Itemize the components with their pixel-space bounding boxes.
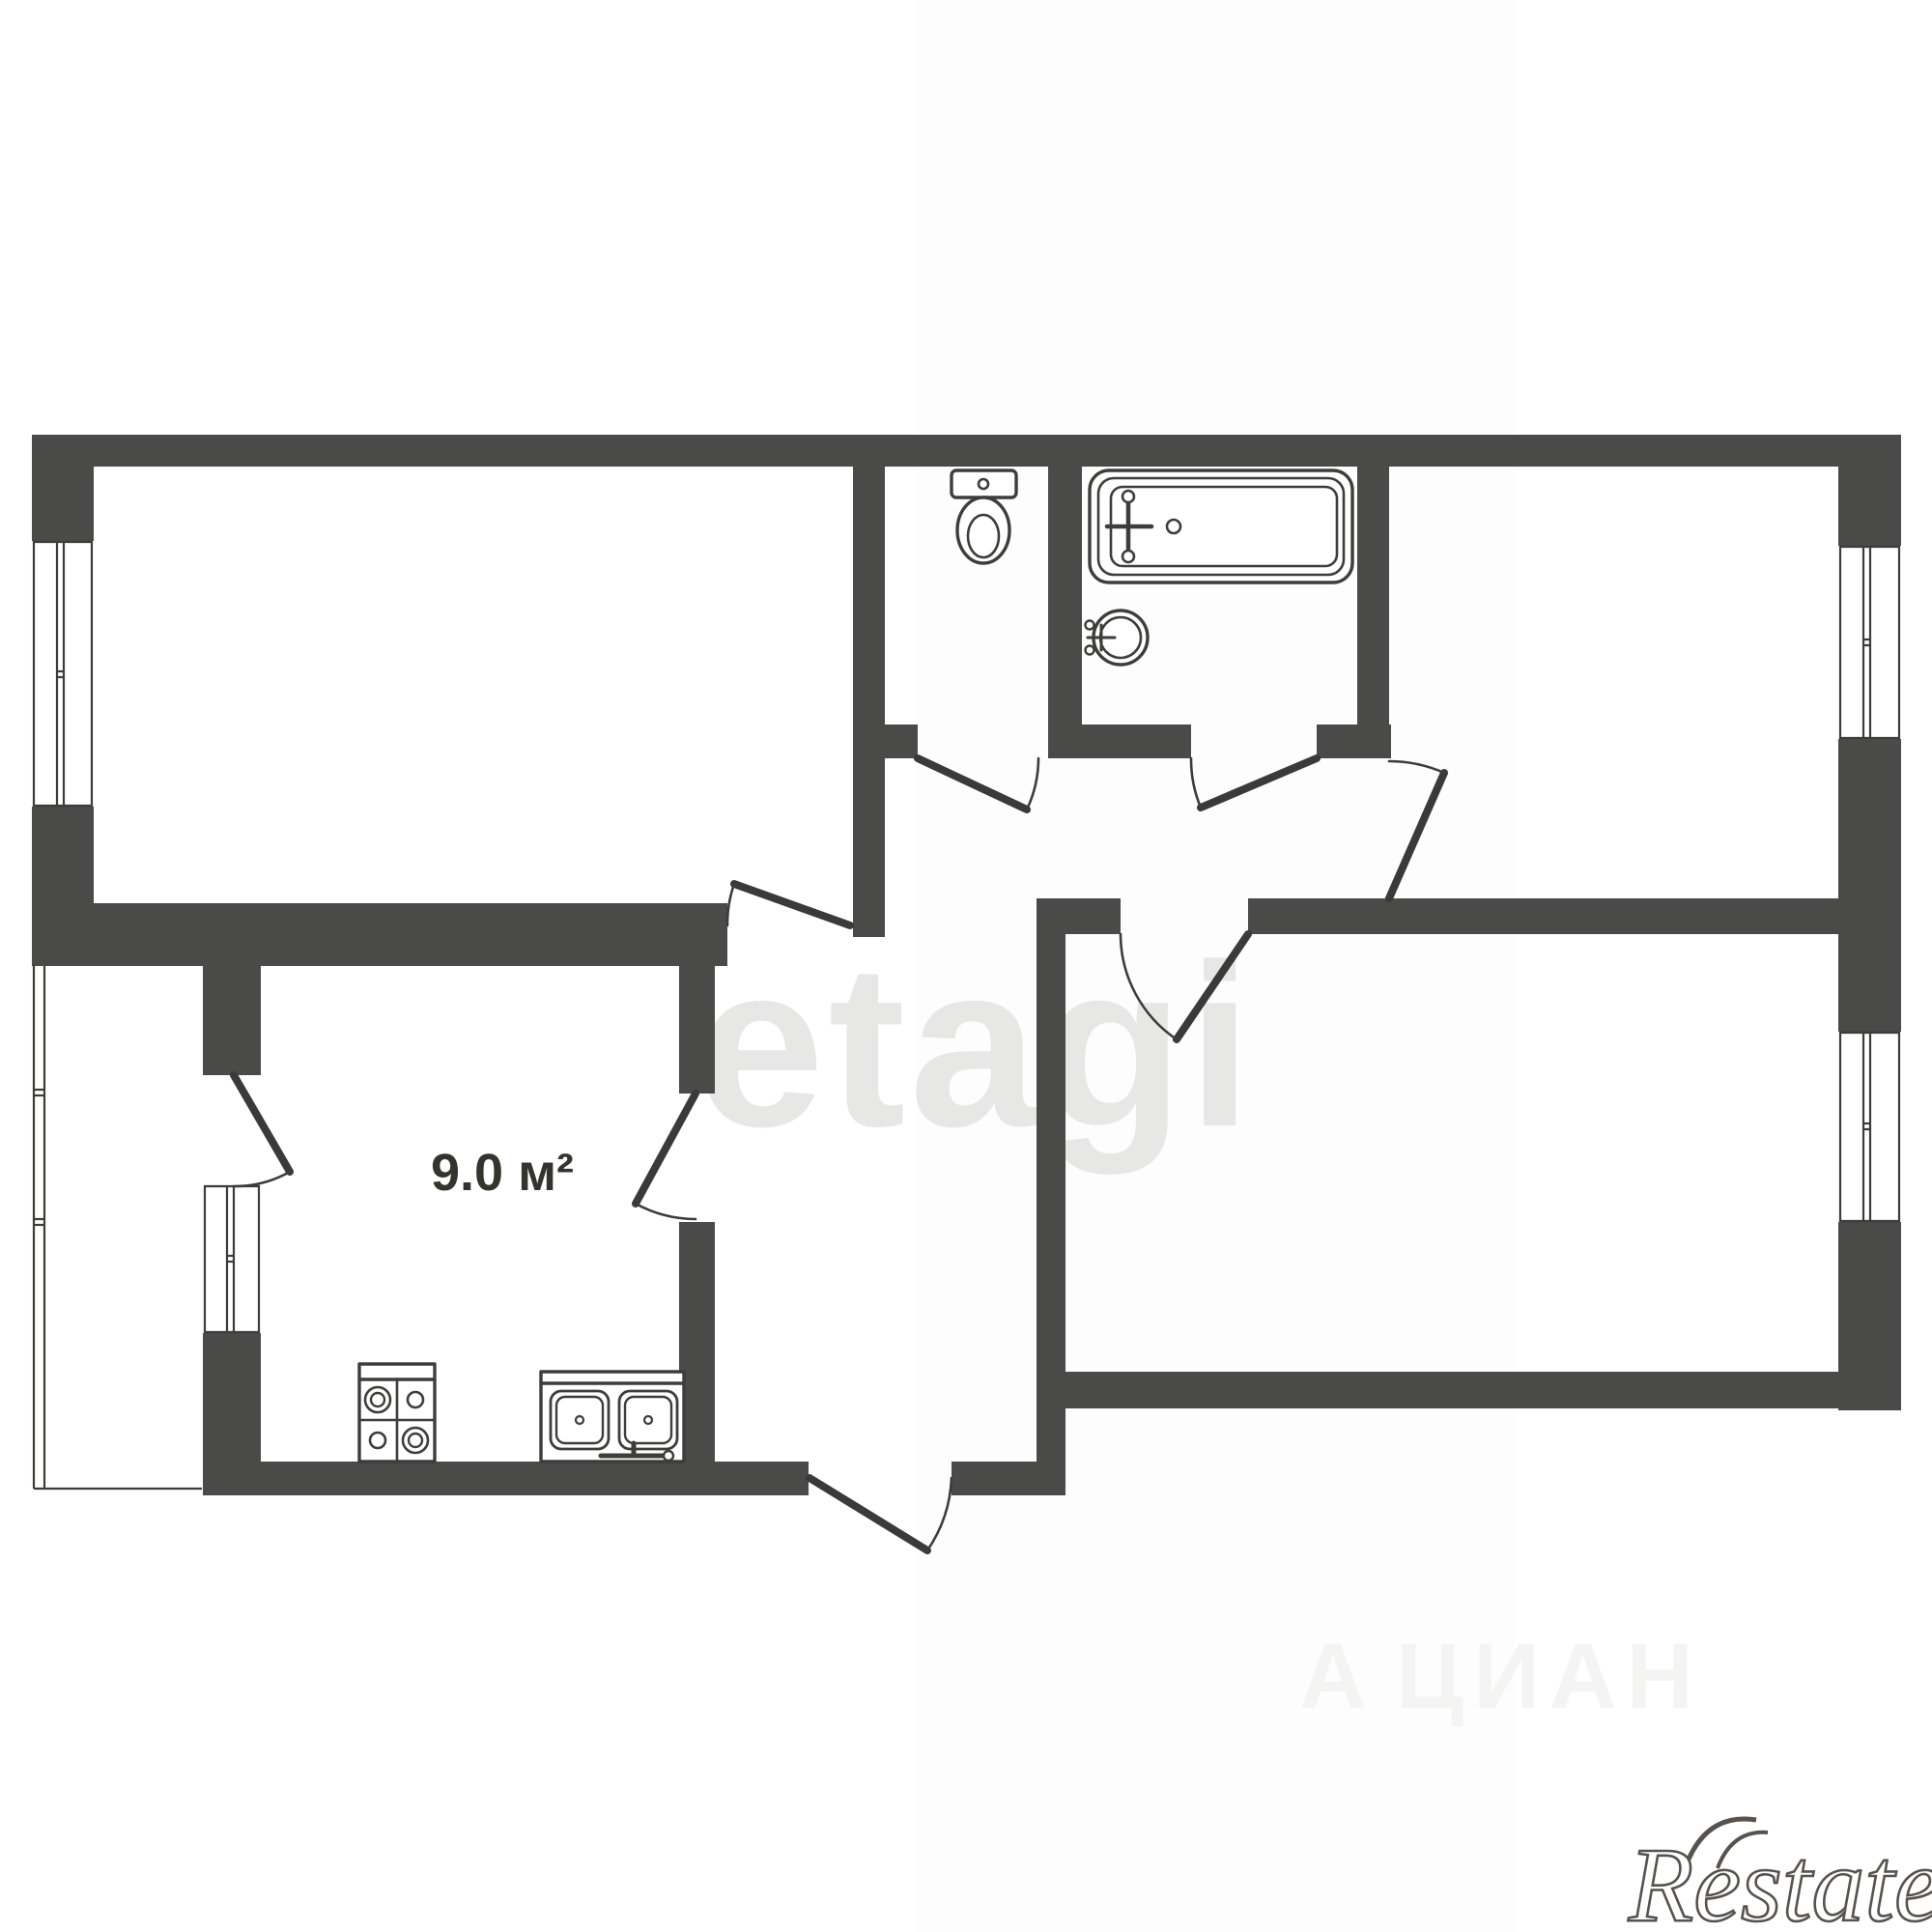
brand-logo: Restate (1628, 1819, 1932, 1932)
wall-wc-bottom-stub (885, 724, 918, 758)
watermark-portal: А ЦИАН (1299, 1625, 1703, 1728)
wall-bath-bottom-left (1048, 724, 1191, 758)
toilet-icon (952, 470, 1016, 563)
watermark-portal-text: ЦИАН (1396, 1625, 1703, 1728)
bathtub-icon (1090, 470, 1352, 582)
stove-icon (359, 1364, 435, 1462)
wall-kitchen-left-lower (203, 1333, 261, 1462)
wall-left-corner-block (32, 435, 94, 541)
kitchen-area-label: 9.0 м² (431, 1144, 574, 1202)
wall-bottom-kitchen (203, 1462, 809, 1495)
wall-bottomroom-bottom (1065, 1372, 1901, 1408)
wall-right-mid-block (1838, 739, 1901, 1032)
window-kitchen-icon (204, 1185, 260, 1333)
wall-bath-bedroom-divider (1357, 467, 1389, 753)
kitchen-sink-icon (541, 1372, 684, 1462)
wall-bottomroom-top-right (1248, 898, 1838, 934)
watermark-portal-mark: А (1299, 1625, 1368, 1728)
floor-plan-canvas: etagi А ЦИАН (0, 0, 1932, 1932)
window-bedroom-bottom-icon (1839, 1032, 1900, 1222)
watermark-etagi: etagi (696, 916, 1256, 1175)
wall-bath-left (1048, 467, 1082, 758)
wall-livingroom-bottom (32, 903, 727, 966)
window-livingroom-icon (33, 541, 93, 807)
brand-text: Restate (1628, 1826, 1932, 1932)
wall-wc-left (853, 467, 885, 937)
window-bedroom-top-icon (1839, 546, 1900, 739)
wall-kitchen-left-upper (203, 966, 261, 1075)
wall-kitchen-right-upper (679, 932, 715, 1094)
wall-bottomroom-left (1037, 898, 1065, 1495)
wall-bottom-entry-right (952, 1462, 1065, 1495)
wall-outer-top (32, 435, 1901, 467)
wall-right-top-block (1838, 435, 1901, 546)
